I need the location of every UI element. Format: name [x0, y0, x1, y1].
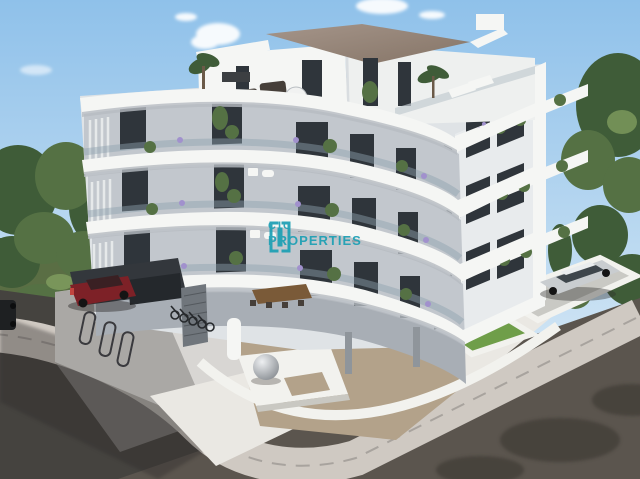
outdoor-kitchen [222, 72, 250, 82]
cloud [175, 13, 197, 21]
scene [0, 0, 640, 479]
sphere-sculpture [253, 354, 279, 380]
roof-box [476, 14, 504, 30]
cloud [20, 65, 52, 75]
tail-light [70, 288, 74, 295]
round-column [227, 318, 241, 360]
sunlit-bush [46, 274, 74, 290]
steel-column [413, 327, 420, 367]
olive-tree [362, 81, 378, 103]
cloud [419, 11, 445, 19]
architectural-rendering: CIC PROPERTIES [0, 0, 640, 479]
olive-tree [215, 172, 229, 192]
courtyard-bench [238, 346, 350, 412]
parked-dark-car [0, 300, 16, 330]
sunlit-leaves [607, 110, 637, 134]
steel-column [345, 332, 352, 374]
cloud [191, 35, 219, 49]
olive-tree [212, 106, 228, 130]
